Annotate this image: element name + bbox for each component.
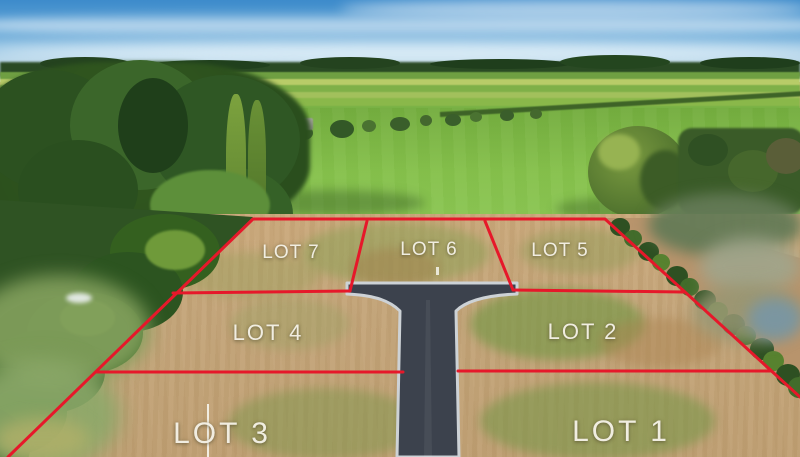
boundary-lot7-bottom <box>173 291 350 293</box>
lot-label-6: LOT 6 <box>400 239 457 261</box>
lot-label-5: LOT 5 <box>531 240 588 262</box>
divider-lot6-lot5 <box>485 221 513 290</box>
aerial-photo: LOT 7 LOT 6 LOT 5 LOT 4 LOT 2 LOT 3 LOT … <box>0 0 800 457</box>
boundary-lot5-bottom <box>513 290 684 292</box>
lot-label-7: LOT 7 <box>262 242 319 264</box>
lot-label-3: LOT 3 <box>173 417 271 451</box>
lot-label-2: LOT 2 <box>548 319 619 345</box>
lot-label-4: LOT 4 <box>233 320 304 346</box>
boundary-lines <box>0 0 800 457</box>
divider-lot7-lot6 <box>350 221 367 291</box>
lot-label-1: LOT 1 <box>572 415 670 449</box>
